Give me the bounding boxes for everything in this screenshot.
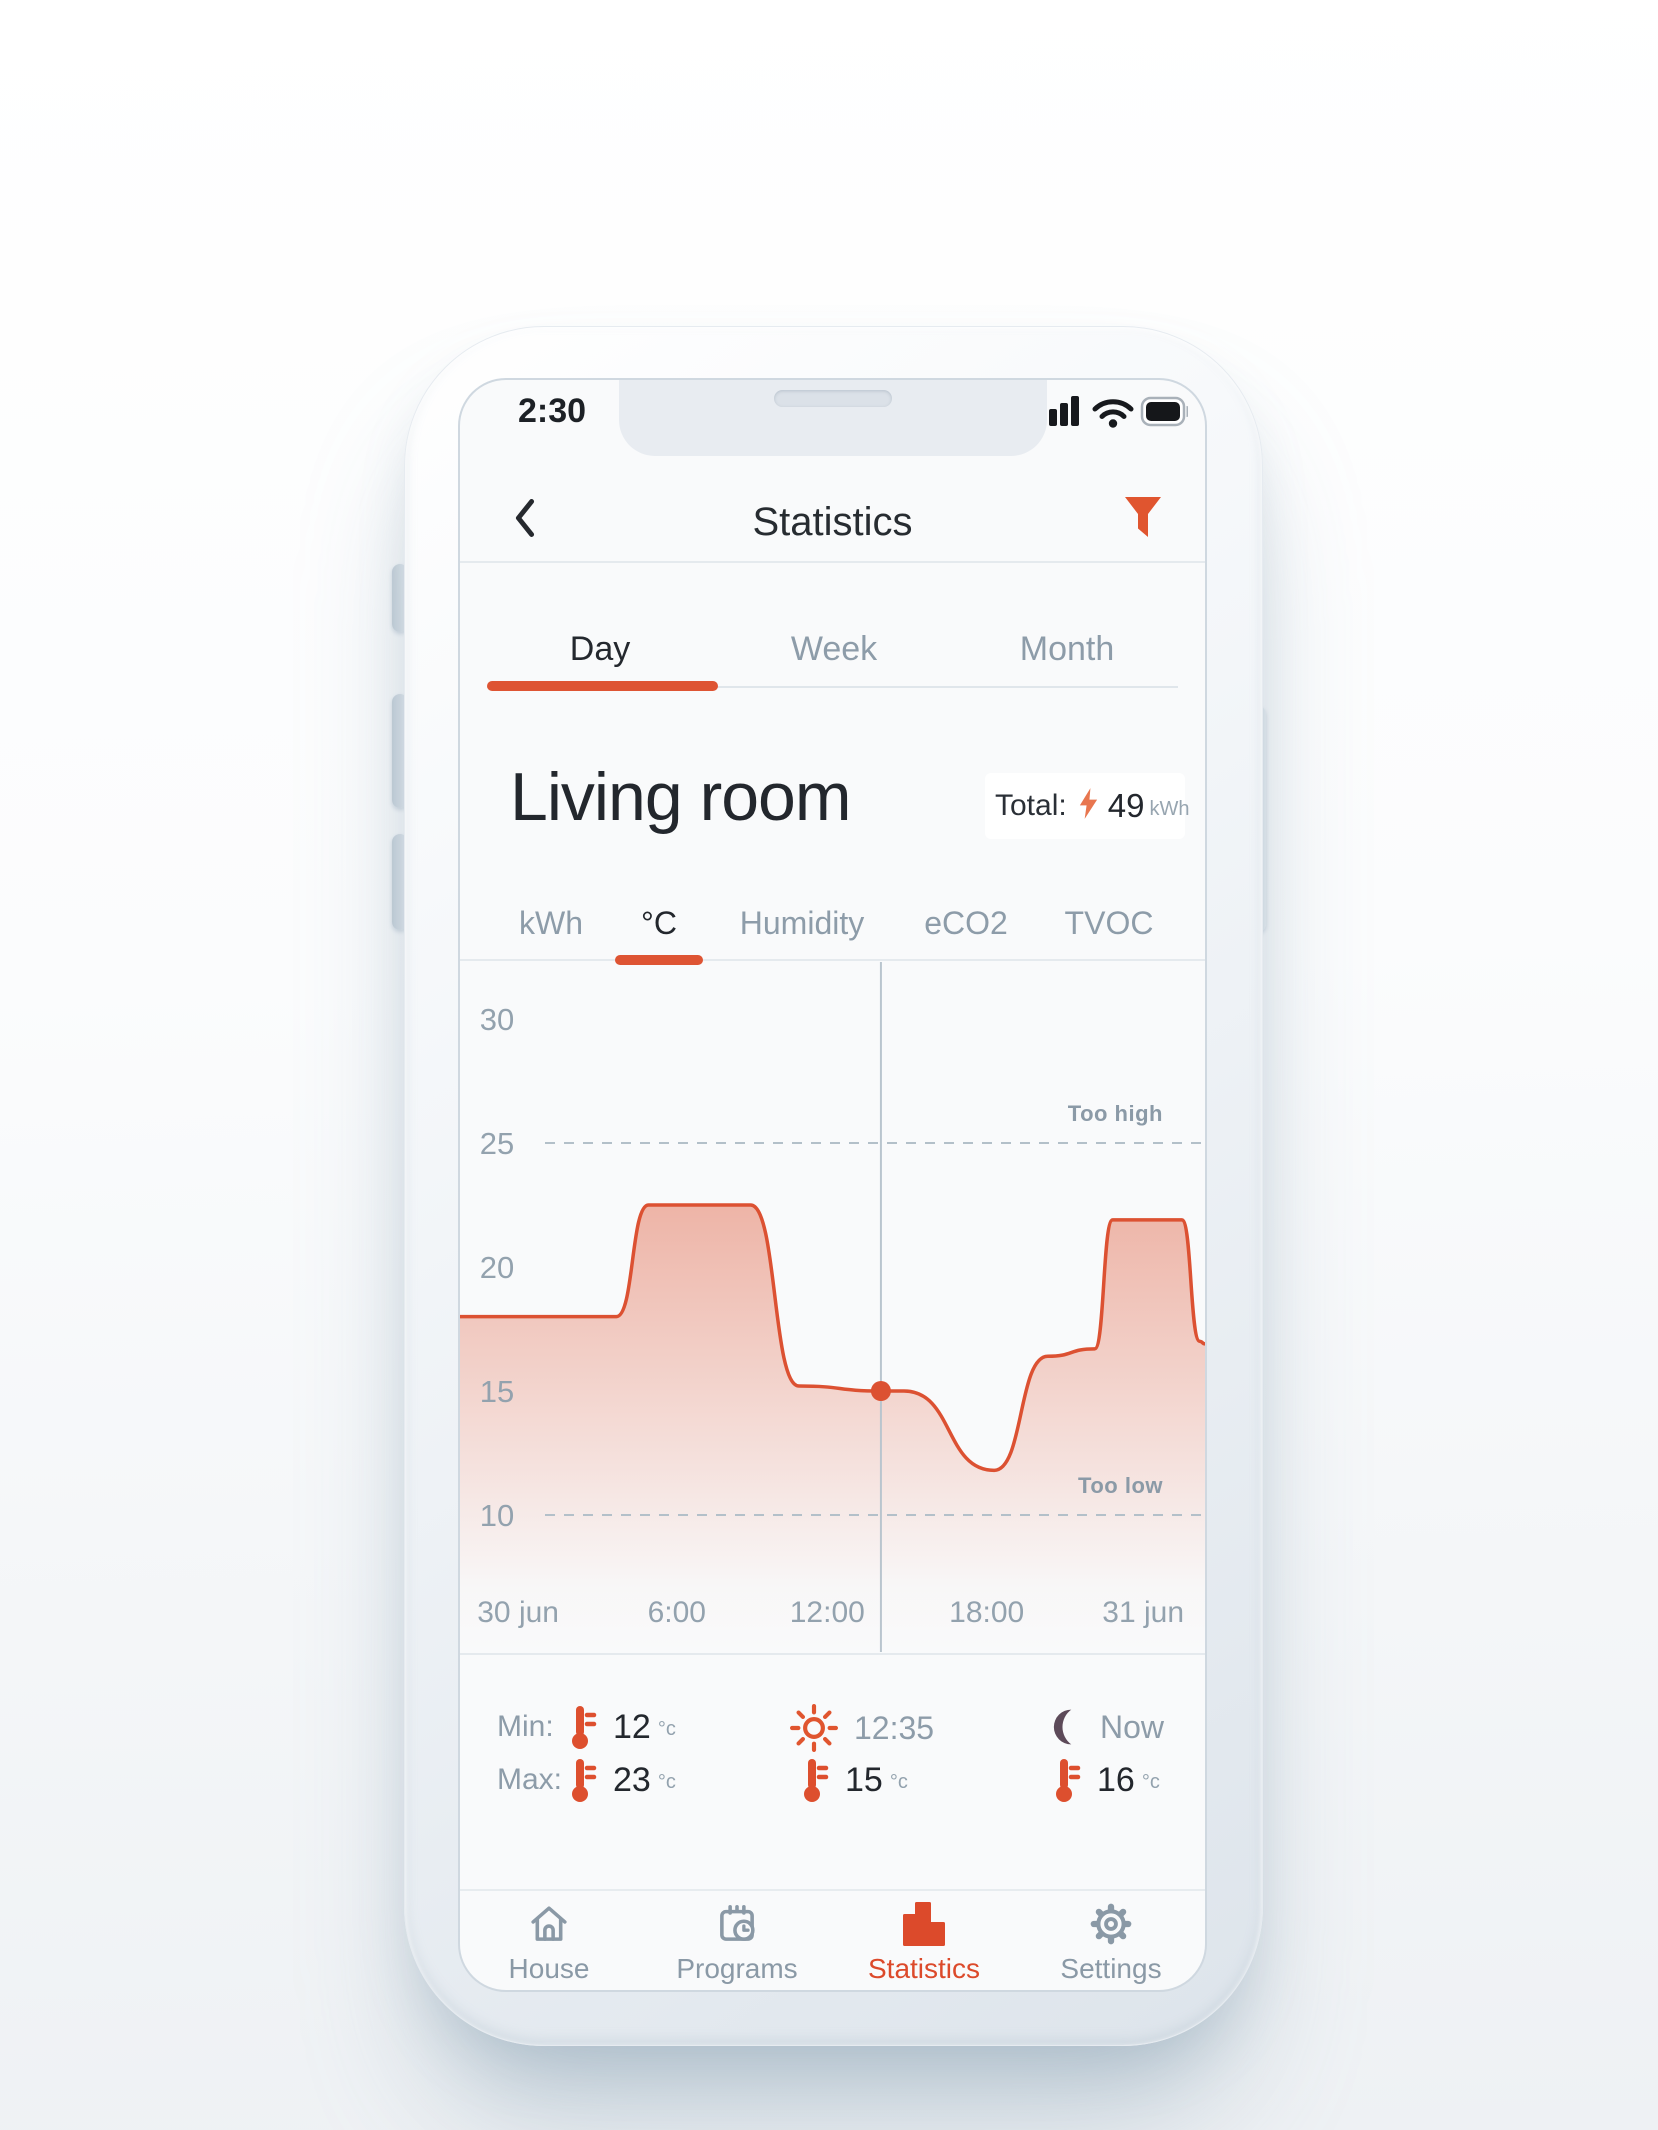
- current-value-dot[interactable]: [871, 1381, 891, 1401]
- tab-humidity[interactable]: Humidity: [740, 905, 864, 942]
- min-label: Min:: [497, 1710, 569, 1744]
- nav-divider: [460, 1889, 1205, 1891]
- nav-item-statistics[interactable]: Statistics: [844, 1902, 1004, 1985]
- nav-item-programs[interactable]: Programs: [657, 1902, 817, 1985]
- now-unit: °c: [1142, 1767, 1160, 1794]
- moon-icon: [1048, 1708, 1084, 1746]
- nav-label-statistics: Statistics: [868, 1953, 980, 1985]
- funnel-icon: [1123, 494, 1163, 540]
- nav-item-house[interactable]: House: [469, 1902, 629, 1985]
- total-unit: kWh: [1149, 792, 1189, 821]
- page-title: Statistics: [460, 500, 1205, 545]
- total-value: 49: [1108, 787, 1145, 825]
- tab-week[interactable]: Week: [791, 630, 877, 669]
- tab-day[interactable]: Day: [570, 630, 630, 669]
- nav-item-settings[interactable]: Settings: [1031, 1902, 1191, 1985]
- midday-time: 12:35: [854, 1710, 934, 1747]
- header-divider: [460, 561, 1205, 563]
- thermometer-icon: [801, 1755, 831, 1805]
- y-axis-tick-label: 15: [480, 1374, 514, 1409]
- y-axis-tick-label: 20: [480, 1250, 514, 1285]
- thermometer-icon: [1053, 1755, 1083, 1805]
- max-unit: °c: [658, 1767, 676, 1794]
- status-bar-icons: [1038, 396, 1188, 433]
- sun-icon: [790, 1704, 838, 1752]
- nav-label-programs: Programs: [676, 1953, 797, 1985]
- midday-temp: 15: [845, 1761, 883, 1800]
- total-energy-box: Total: 49 kWh: [985, 773, 1185, 839]
- now-label: Now: [1100, 1709, 1164, 1746]
- thermometer-icon: [569, 1702, 599, 1752]
- midday-unit: °c: [890, 1767, 908, 1794]
- lightning-bolt-icon: [1077, 787, 1100, 825]
- active-tab-indicator: [487, 681, 718, 691]
- max-label: Max:: [497, 1763, 569, 1797]
- battery-icon: [1142, 398, 1188, 425]
- now-temp: 16: [1097, 1761, 1135, 1800]
- threshold-label: Too low: [1078, 1473, 1163, 1498]
- gear-icon: [1088, 1902, 1134, 1946]
- temperature-chart[interactable]: Too highToo low302520151030 jun6:0012:00…: [460, 960, 1205, 1654]
- phone-screen: 2:30 Statist: [460, 380, 1205, 1990]
- status-bar-time: 2:30: [518, 392, 586, 431]
- chart-divider: [460, 1653, 1205, 1655]
- filter-button[interactable]: [1123, 494, 1163, 545]
- y-axis-tick-label: 30: [480, 1002, 514, 1037]
- tab-temperature[interactable]: °C: [641, 905, 677, 942]
- tab-tvoc[interactable]: TVOC: [1065, 905, 1154, 942]
- min-unit: °c: [658, 1714, 676, 1741]
- x-axis-tick-label: 18:00: [949, 1596, 1024, 1629]
- phone-notch: [619, 380, 1047, 456]
- threshold-label: Too high: [1068, 1101, 1163, 1126]
- tab-kwh[interactable]: kWh: [519, 905, 583, 942]
- phone-speaker: [774, 390, 892, 407]
- min-value: 12: [613, 1708, 651, 1747]
- x-axis-tick-label: 30 jun: [477, 1596, 559, 1629]
- wifi-icon: [1095, 402, 1131, 428]
- y-axis-tick-label: 10: [480, 1498, 514, 1533]
- house-icon: [526, 1902, 572, 1946]
- bar-chart-steps-icon: [903, 1902, 945, 1946]
- stat-now: Now: [1048, 1708, 1164, 1746]
- nav-label-settings: Settings: [1060, 1953, 1161, 1985]
- x-axis-tick-label: 12:00: [790, 1596, 865, 1629]
- tab-month[interactable]: Month: [1020, 630, 1115, 669]
- stat-min: Min: 12 °c: [497, 1702, 676, 1752]
- nav-label-house: House: [509, 1953, 590, 1985]
- stat-max: Max: 23 °c: [497, 1755, 676, 1805]
- tab-eco2[interactable]: eCO2: [924, 905, 1008, 942]
- room-title: Living room: [510, 758, 851, 836]
- thermometer-icon: [569, 1755, 599, 1805]
- stat-midday-temp: 15 °c: [801, 1755, 908, 1805]
- max-value: 23: [613, 1761, 651, 1800]
- x-axis-tick-label: 31 jun: [1102, 1596, 1184, 1629]
- stat-midday-time: 12:35: [790, 1704, 934, 1752]
- y-axis-tick-label: 25: [480, 1126, 514, 1161]
- calendar-clock-icon: [714, 1902, 760, 1946]
- total-label: Total:: [995, 789, 1067, 823]
- temperature-area-fill: [460, 1205, 1205, 1654]
- stat-now-temp: 16 °c: [1053, 1755, 1160, 1805]
- x-axis-tick-label: 6:00: [648, 1596, 706, 1629]
